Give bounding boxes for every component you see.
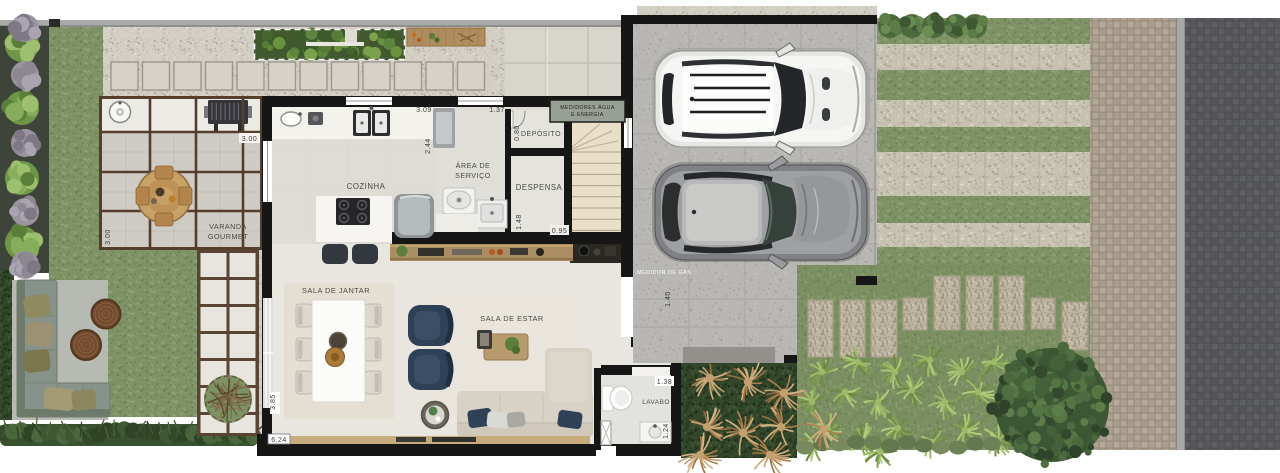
svg-text:DEPÓSITO: DEPÓSITO [521,129,561,138]
svg-text:MEDIDORES ÁGUA: MEDIDORES ÁGUA [560,104,615,111]
svg-text:SALA DE JANTAR: SALA DE JANTAR [302,286,370,295]
svg-text:0.95: 0.95 [552,228,568,235]
svg-text:2.44: 2.44 [425,138,432,154]
svg-text:VARANDA: VARANDA [209,222,247,231]
svg-text:E ENERGIA: E ENERGIA [571,112,604,118]
svg-text:SERVIÇO: SERVIÇO [455,171,491,180]
svg-text:3.09: 3.09 [416,107,432,114]
svg-text:1.48: 1.48 [516,214,523,230]
svg-text:GOURMET: GOURMET [208,232,248,241]
svg-text:3.00: 3.00 [105,229,112,245]
svg-text:ÁREA DE: ÁREA DE [456,161,491,170]
svg-text:3.85: 3.85 [270,394,277,410]
svg-text:6.24: 6.24 [271,437,287,444]
svg-text:SALA DE ESTAR: SALA DE ESTAR [480,314,543,323]
svg-text:0.80: 0.80 [514,125,521,141]
svg-text:1.37: 1.37 [489,107,505,114]
svg-text:1.38: 1.38 [657,379,673,386]
svg-text:COZINHA: COZINHA [347,182,386,191]
svg-text:1.40: 1.40 [665,291,672,307]
svg-text:MEDIDOR DE GÁS: MEDIDOR DE GÁS [637,269,691,276]
svg-text:LAVABO: LAVABO [642,399,670,406]
svg-text:DESPENSA: DESPENSA [516,183,563,192]
svg-text:1.24: 1.24 [663,423,670,439]
svg-text:3.00: 3.00 [242,136,258,143]
